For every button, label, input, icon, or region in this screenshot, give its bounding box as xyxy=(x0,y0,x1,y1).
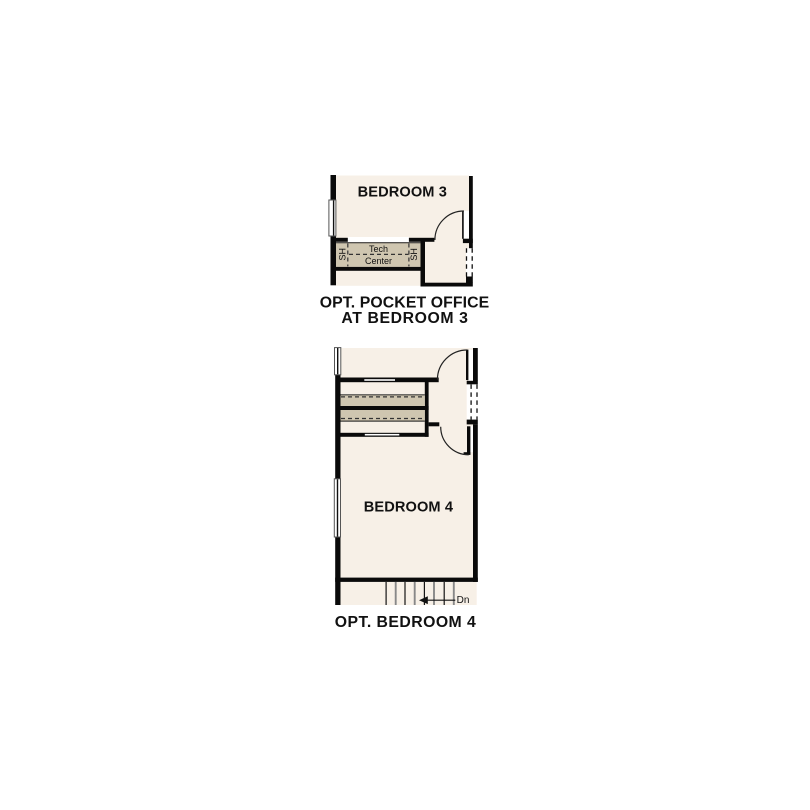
svg-text:BEDROOM 3: BEDROOM 3 xyxy=(358,184,447,200)
svg-text:Center: Center xyxy=(365,256,392,266)
svg-text:OPT. POCKET OFFICE: OPT. POCKET OFFICE xyxy=(320,295,489,312)
svg-text:OPT. BEDROOM 4: OPT. BEDROOM 4 xyxy=(335,614,476,631)
svg-text:AT BEDROOM 3: AT BEDROOM 3 xyxy=(341,310,468,327)
svg-text:Tech: Tech xyxy=(369,244,388,254)
svg-text:SH: SH xyxy=(409,248,419,261)
svg-text:Dn: Dn xyxy=(457,595,470,606)
svg-text:SH: SH xyxy=(338,248,348,261)
svg-text:BEDROOM 4: BEDROOM 4 xyxy=(364,500,454,516)
